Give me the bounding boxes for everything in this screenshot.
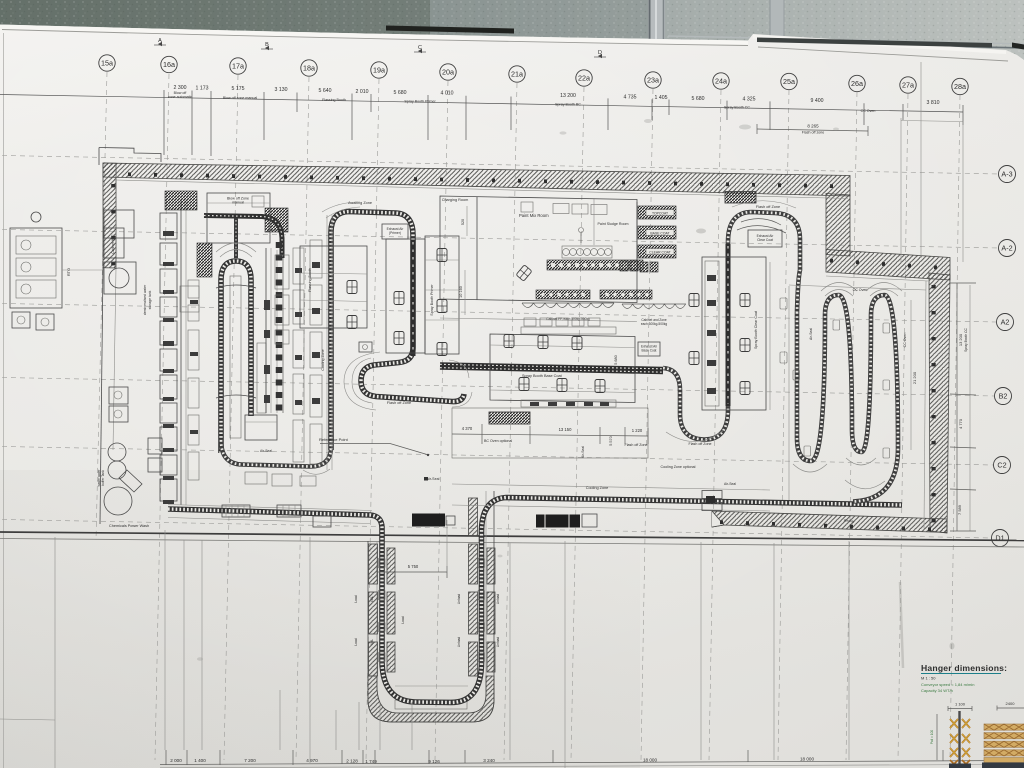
- svg-text:1 405: 1 405: [655, 95, 668, 101]
- svg-text:Spray Booth CC: Spray Booth CC: [724, 106, 750, 110]
- svg-text:Flassing Booth: Flassing Booth: [308, 268, 312, 292]
- svg-text:A-3: A-3: [1001, 170, 1012, 179]
- svg-text:Load: Load: [401, 616, 405, 624]
- svg-text:VBL: VBL: [370, 639, 374, 645]
- svg-text:1 173: 1 173: [196, 86, 209, 92]
- svg-text:5 175: 5 175: [232, 86, 245, 92]
- svg-text:4 010: 4 010: [441, 91, 454, 97]
- svg-text:Conveyor speed = 1,84 m/min: Conveyor speed = 1,84 m/min: [921, 682, 974, 687]
- svg-text:2400: 2400: [1006, 701, 1016, 706]
- svg-text:21 200: 21 200: [912, 371, 917, 384]
- svg-text:7 200: 7 200: [244, 758, 256, 763]
- svg-text:5 570: 5 570: [609, 436, 613, 446]
- svg-text:B2: B2: [999, 392, 1008, 401]
- svg-text:19a: 19a: [373, 66, 385, 75]
- svg-text:A2: A2: [1001, 318, 1010, 327]
- svg-text:520: 520: [461, 219, 465, 225]
- svg-text:CC Oven: CC Oven: [903, 333, 907, 348]
- svg-text:Blow off zone manual: Blow off zone manual: [223, 96, 257, 100]
- svg-text:18 000: 18 000: [800, 757, 814, 762]
- svg-text:(Primer): (Primer): [389, 231, 401, 235]
- svg-text:Spray Booth Primer: Spray Booth Primer: [404, 100, 436, 104]
- svg-text:16a: 16a: [163, 60, 175, 69]
- svg-text:Unload: Unload: [457, 637, 461, 648]
- svg-text:22a: 22a: [578, 74, 590, 83]
- svg-text:1 749: 1 749: [365, 759, 377, 764]
- svg-text:23a: 23a: [647, 76, 659, 85]
- svg-text:Cooling Zone: Cooling Zone: [321, 349, 325, 370]
- svg-text:CC Oven: CC Oven: [853, 288, 868, 292]
- svg-text:Flash off Zone: Flash off Zone: [689, 442, 712, 446]
- svg-text:Air-Seal: Air-Seal: [724, 482, 736, 486]
- svg-text:Awaiting Zone: Awaiting Zone: [348, 201, 372, 205]
- svg-text:Chemicals Power Wash: Chemicals Power Wash: [109, 524, 149, 528]
- svg-text:4 770: 4 770: [958, 418, 963, 429]
- svg-text:M 1 : 50: M 1 : 50: [921, 676, 936, 681]
- svg-text:Flash off Zone: Flash off Zone: [387, 401, 411, 405]
- svg-text:8 265: 8 265: [807, 124, 819, 129]
- svg-text:Spray Booth Primer: Spray Booth Primer: [430, 284, 434, 316]
- svg-text:Spray Booth CC: Spray Booth CC: [964, 327, 968, 351]
- svg-text:Flash off Zone: Flash off Zone: [625, 443, 648, 447]
- svg-text:Unload: Unload: [457, 594, 461, 605]
- svg-text:Spray Booth Clear Coat: Spray Booth Clear Coat: [754, 311, 758, 349]
- svg-text:24a: 24a: [715, 77, 727, 86]
- svg-text:Cooling Zone: Cooling Zone: [586, 486, 609, 490]
- svg-text:BASE COAT: BASE COAT: [650, 232, 669, 236]
- svg-text:28a: 28a: [954, 82, 966, 91]
- svg-text:5 640: 5 640: [319, 88, 332, 94]
- svg-text:Pali = 100: Pali = 100: [930, 730, 934, 744]
- svg-text:Unload: Unload: [496, 637, 500, 648]
- svg-text:Clear Coat: Clear Coat: [757, 238, 773, 242]
- svg-text:18 000: 18 000: [643, 758, 657, 763]
- svg-text:26a: 26a: [851, 79, 863, 88]
- svg-text:A-2: A-2: [1001, 244, 1012, 253]
- svg-text:storage tank: storage tank: [148, 290, 152, 309]
- svg-text:Paint Mix Room: Paint Mix Room: [519, 213, 549, 218]
- svg-text:Air-Seal: Air-Seal: [809, 328, 813, 340]
- svg-text:Capacity 34 WT/h: Capacity 34 WT/h: [921, 688, 953, 693]
- svg-text:4 370: 4 370: [462, 426, 473, 431]
- svg-text:BC Oven optional: BC Oven optional: [484, 439, 512, 443]
- svg-text:5 680: 5 680: [614, 355, 618, 365]
- svg-text:Base Coat: Base Coat: [642, 349, 657, 353]
- svg-text:15a: 15a: [101, 59, 113, 68]
- svg-text:each 300kg-500kg: each 300kg-500kg: [641, 322, 667, 326]
- svg-text:1 220: 1 220: [632, 428, 643, 433]
- svg-text:Flash off zone: Flash off zone: [802, 131, 825, 135]
- svg-text:Hanger dimensions:: Hanger dimensions:: [921, 663, 1007, 673]
- svg-text:20a: 20a: [442, 68, 454, 77]
- svg-text:C2: C2: [997, 461, 1006, 470]
- svg-text:manual: manual: [232, 201, 244, 205]
- svg-text:10 160: 10 160: [459, 286, 463, 298]
- svg-text:CLEAR COAT: CLEAR COAT: [649, 251, 670, 255]
- svg-text:Air-Seal: Air-Seal: [581, 446, 585, 458]
- svg-text:7 589: 7 589: [957, 504, 962, 515]
- svg-text:Flassing Booth: Flassing Booth: [322, 98, 346, 102]
- svg-text:Paint Sludge Room: Paint Sludge Room: [598, 222, 629, 226]
- svg-text:zone automatic: zone automatic: [168, 95, 193, 99]
- svg-text:27a: 27a: [902, 81, 914, 90]
- svg-text:5 750: 5 750: [408, 564, 419, 569]
- svg-text:25a: 25a: [783, 77, 795, 86]
- svg-text:4 735: 4 735: [624, 95, 637, 101]
- svg-text:2 128: 2 128: [346, 759, 358, 764]
- svg-text:9 126: 9 126: [428, 759, 440, 764]
- svg-text:13 200: 13 200: [560, 93, 576, 99]
- svg-text:CC Oven: CC Oven: [861, 109, 876, 113]
- svg-text:Spray Booth BC: Spray Booth BC: [555, 103, 581, 107]
- svg-text:VBL: VBL: [370, 596, 374, 602]
- svg-text:21a: 21a: [511, 70, 523, 79]
- svg-text:1 400: 1 400: [194, 758, 206, 763]
- svg-text:Unload: Unload: [496, 594, 500, 605]
- svg-text:Air-Seal: Air-Seal: [427, 477, 440, 481]
- svg-text:Charging Room: Charging Room: [442, 198, 469, 202]
- svg-text:3 810: 3 810: [927, 100, 940, 106]
- svg-text:Air-Seal: Air-Seal: [260, 449, 272, 453]
- svg-text:2 010: 2 010: [356, 89, 369, 95]
- svg-text:2 000: 2 000: [170, 758, 182, 763]
- svg-text:3 240: 3 240: [483, 758, 495, 763]
- svg-text:9 400: 9 400: [811, 98, 824, 104]
- svg-text:buffer Tank: buffer Tank: [101, 470, 105, 486]
- svg-text:4 970: 4 970: [306, 758, 318, 763]
- svg-text:demineralised water: demineralised water: [143, 284, 147, 315]
- svg-text:17a: 17a: [232, 62, 244, 71]
- svg-text:Cooling Zone optional: Cooling Zone optional: [661, 465, 696, 469]
- svg-text:Reference Point: Reference Point: [319, 437, 349, 442]
- svg-text:13 150: 13 150: [559, 427, 572, 432]
- svg-text:4 325: 4 325: [743, 97, 756, 103]
- svg-text:Cabinet HTE: Cabinet HTE: [111, 234, 115, 254]
- svg-text:80: 80: [234, 233, 238, 237]
- svg-text:Flash off Zone: Flash off Zone: [756, 205, 780, 209]
- svg-text:13 200: 13 200: [958, 333, 963, 346]
- svg-text:5 680: 5 680: [394, 90, 407, 96]
- svg-text:18a: 18a: [303, 64, 315, 73]
- svg-text:5 680: 5 680: [692, 96, 705, 102]
- svg-text:RTO: RTO: [66, 268, 71, 276]
- svg-text:1 100: 1 100: [955, 702, 966, 707]
- svg-text:3 130: 3 130: [275, 87, 288, 93]
- svg-text:TOPCOAT: TOPCOAT: [652, 212, 668, 216]
- svg-text:Load: Load: [354, 595, 358, 603]
- svg-text:Load: Load: [354, 638, 358, 646]
